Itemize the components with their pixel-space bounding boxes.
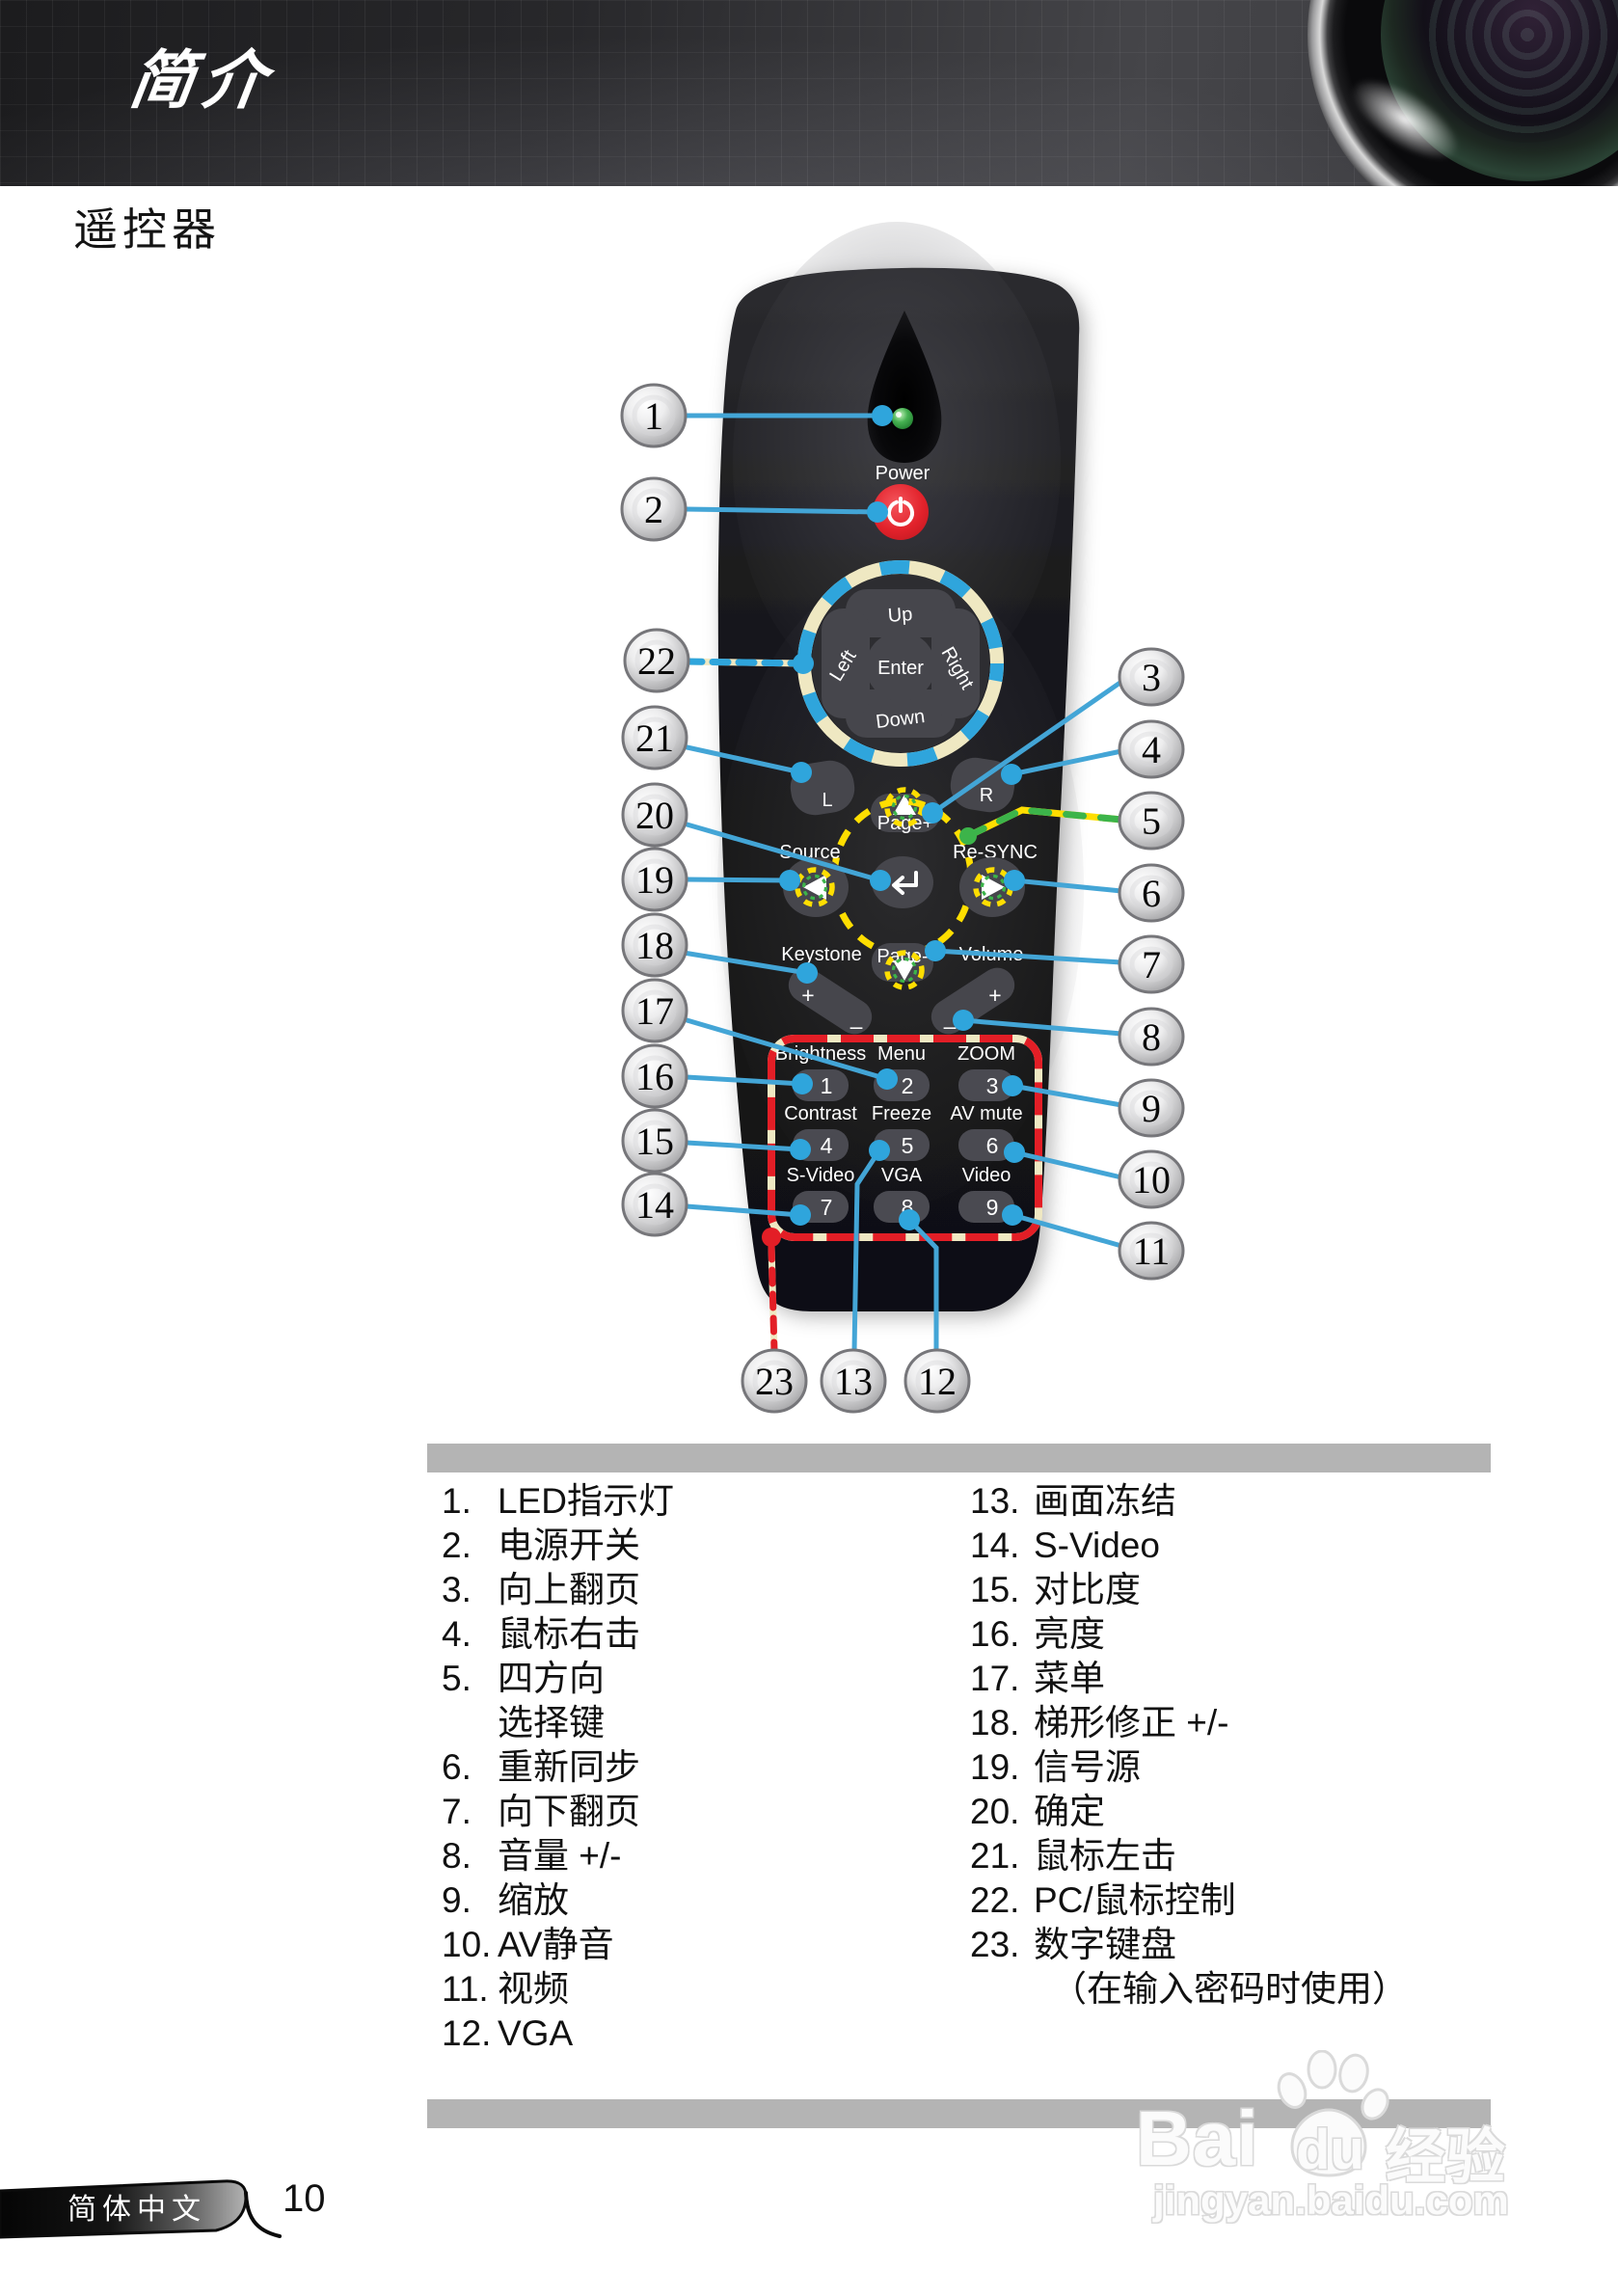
legend-item-text: LED指示灯 bbox=[498, 1479, 674, 1524]
legend-item: 18.梯形修正 +/- bbox=[970, 1701, 1491, 1745]
callout-line-19 bbox=[687, 879, 790, 880]
legend-item: 2.电源开关 bbox=[442, 1524, 895, 1568]
legend-item: 19.信号源 bbox=[970, 1745, 1491, 1790]
legend-item-text: 重新同步 bbox=[498, 1745, 640, 1790]
keypad-key-digit: 2 bbox=[902, 1073, 914, 1098]
keypad-key-digit: 3 bbox=[986, 1073, 999, 1098]
callout-anchor-dot-7 bbox=[925, 940, 946, 961]
legend-item-text: 四方向 bbox=[498, 1657, 605, 1701]
legend-item-text: 选择键 bbox=[498, 1701, 605, 1745]
footer-tab: 简体中文 bbox=[0, 2175, 309, 2241]
legend-item-number: 22. bbox=[970, 1878, 1034, 1923]
callout-anchor-dot-18 bbox=[796, 962, 818, 984]
legend-item-text: 视频 bbox=[498, 1967, 569, 2012]
callout-number-8: 8 bbox=[1142, 1015, 1161, 1059]
callout-line-2 bbox=[686, 509, 877, 512]
legend-item: 5.四方向 bbox=[442, 1657, 895, 1701]
legend-item: 11.视频 bbox=[442, 1967, 895, 2012]
callout-anchor-dot-1 bbox=[872, 405, 893, 426]
legend-item-number: 2. bbox=[442, 1524, 498, 1568]
legend-item-text: AV静音 bbox=[498, 1923, 614, 1967]
legend-item-number: 6. bbox=[442, 1745, 498, 1790]
legend-item-number: 16. bbox=[970, 1612, 1034, 1657]
callout-anchor-dot-3 bbox=[922, 802, 943, 824]
keypad-key-digit: 6 bbox=[986, 1133, 999, 1158]
keypad-key-digit: 5 bbox=[902, 1133, 914, 1158]
legend-item-text: 对比度 bbox=[1034, 1568, 1141, 1612]
legend-item: 8.音量 +/- bbox=[442, 1834, 895, 1878]
legend-item-number: 8. bbox=[442, 1834, 498, 1878]
callout-number-18: 18 bbox=[635, 924, 674, 967]
legend-item-number: 12. bbox=[442, 2012, 498, 2056]
legend-item: 17.菜单 bbox=[970, 1657, 1491, 1701]
legend-item: 1.LED指示灯 bbox=[442, 1479, 895, 1524]
callout-anchor-dot-23 bbox=[762, 1228, 781, 1247]
keypad-key-label: Menu bbox=[877, 1043, 926, 1065]
legend-item: 21.鼠标左击 bbox=[970, 1834, 1491, 1878]
callout-number-16: 16 bbox=[635, 1055, 674, 1098]
callout-number-22: 22 bbox=[637, 639, 676, 683]
legend-item-text: 缩放 bbox=[498, 1878, 569, 1923]
watermark-brand-prefix: Bai bbox=[1136, 2094, 1259, 2183]
legend-item: 15.对比度 bbox=[970, 1568, 1491, 1612]
legend-item-text: 亮度 bbox=[1034, 1612, 1105, 1657]
legend-item: 23.数字键盘 bbox=[970, 1923, 1491, 1967]
led-glint bbox=[896, 412, 902, 418]
legend-item-text: 电源开关 bbox=[498, 1524, 640, 1568]
callout-anchor-dot-19 bbox=[779, 870, 800, 891]
legend-item: 13.画面冻结 bbox=[970, 1479, 1491, 1524]
callout-anchor-dot-11 bbox=[1002, 1204, 1023, 1226]
keypad-key-label: Video bbox=[962, 1165, 1011, 1186]
power-label: Power bbox=[876, 463, 930, 484]
callout-number-3: 3 bbox=[1142, 656, 1161, 699]
legend-item-text: S-Video bbox=[1034, 1524, 1160, 1568]
keypad-key-digit: 7 bbox=[821, 1195, 833, 1220]
callout-number-7: 7 bbox=[1142, 943, 1161, 986]
legend-item-number: 7. bbox=[442, 1790, 498, 1834]
legend-item-text: 音量 +/- bbox=[498, 1834, 622, 1878]
legend-item-text: 向上翻页 bbox=[498, 1568, 640, 1612]
footer-language-label: 简体中文 bbox=[67, 2194, 206, 2226]
callout-anchor-dot-9 bbox=[1002, 1075, 1023, 1096]
legend-item-text: 菜单 bbox=[1034, 1657, 1105, 1701]
legend-item-number: 3. bbox=[442, 1568, 498, 1612]
callout-number-23: 23 bbox=[755, 1360, 794, 1403]
callout-number-12: 12 bbox=[918, 1360, 957, 1403]
legend-top-bar bbox=[427, 1444, 1491, 1472]
keypad-key-label: Freeze bbox=[872, 1103, 931, 1124]
callout-number-20: 20 bbox=[635, 794, 674, 837]
led-indicator bbox=[892, 408, 913, 429]
legend-item-number: 19. bbox=[970, 1745, 1034, 1790]
keypad-key-label: VGA bbox=[881, 1165, 923, 1186]
keystone-plus: + bbox=[801, 983, 814, 1008]
callout-anchor-dot-2 bbox=[867, 501, 888, 523]
legend-item-text: PC/鼠标控制 bbox=[1034, 1878, 1236, 1923]
legend-item-number: 14. bbox=[970, 1524, 1034, 1568]
legend-item-number: 4. bbox=[442, 1612, 498, 1657]
legend-item-text: VGA bbox=[498, 2012, 573, 2056]
callout-anchor-dot-15 bbox=[790, 1139, 811, 1160]
manual-page: 简介 遥控器 bbox=[0, 0, 1618, 2296]
legend-item-text: 鼠标左击 bbox=[1034, 1834, 1176, 1878]
callout-number-14: 14 bbox=[635, 1183, 674, 1227]
legend-item-number: 9. bbox=[442, 1878, 498, 1923]
callout-number-2: 2 bbox=[644, 488, 663, 531]
legend-item-text: 信号源 bbox=[1034, 1745, 1141, 1790]
numeric-keypad: Brightness1Menu2ZOOM3Contrast4Freeze5AV … bbox=[775, 1043, 1023, 1223]
callout-anchor-dot-6 bbox=[1004, 870, 1025, 891]
nav-up-label: Up bbox=[887, 604, 913, 627]
callout-anchor-dot-16 bbox=[792, 1073, 813, 1094]
legend-item-number: 23. bbox=[970, 1923, 1034, 1967]
keypad-key-digit: 1 bbox=[821, 1073, 833, 1098]
mouse-right-label: R bbox=[980, 785, 993, 806]
legend-item: 22.PC/鼠标控制 bbox=[970, 1878, 1491, 1923]
legend-column-right: 13.画面冻结14.S-Video15.对比度16.亮度17.菜单18.梯形修正… bbox=[970, 1479, 1491, 2012]
callout-number-10: 10 bbox=[1132, 1158, 1171, 1202]
legend-item: 4.鼠标右击 bbox=[442, 1612, 895, 1657]
callout-anchor-dot-4 bbox=[1001, 764, 1022, 785]
legend-item: 14.S-Video bbox=[970, 1524, 1491, 1568]
legend-item-number: 11. bbox=[442, 1967, 498, 2012]
callout-anchor-dot-17 bbox=[876, 1068, 898, 1090]
legend-item: 12.VGA bbox=[442, 2012, 895, 2056]
legend-item-number: 5. bbox=[442, 1657, 498, 1701]
volume-plus: + bbox=[988, 983, 1001, 1008]
callout-number-21: 21 bbox=[635, 716, 674, 760]
page-number: 10 bbox=[283, 2177, 326, 2221]
callout-number-9: 9 bbox=[1142, 1087, 1161, 1130]
callout-anchor-dot-8 bbox=[953, 1010, 974, 1031]
callout-number-5: 5 bbox=[1142, 799, 1161, 843]
callout-anchor-dot-5 bbox=[959, 827, 977, 845]
legend-item-number bbox=[970, 1967, 1034, 2012]
legend-item-number: 13. bbox=[970, 1479, 1034, 1524]
callout-anchor-dot-22 bbox=[793, 653, 814, 674]
callout-anchor-dot-12 bbox=[899, 1209, 920, 1230]
legend-item: （在输入密码时使用） bbox=[970, 1967, 1491, 2012]
legend-item-number: 21. bbox=[970, 1834, 1034, 1878]
legend-item-text: （在输入密码时使用） bbox=[1034, 1967, 1408, 2012]
legend-item: 3.向上翻页 bbox=[442, 1568, 895, 1612]
callout-number-19: 19 bbox=[635, 858, 674, 902]
legend-item-text: 数字键盘 bbox=[1034, 1923, 1176, 1967]
legend-item-number: 18. bbox=[970, 1701, 1034, 1745]
callout-number-17: 17 bbox=[635, 989, 674, 1033]
legend-column-left: 1.LED指示灯2.电源开关3.向上翻页4.鼠标右击5.四方向选择键6.重新同步… bbox=[442, 1479, 895, 2056]
callout-anchor-dot-13 bbox=[869, 1140, 890, 1161]
keystone-label: Keystone bbox=[781, 944, 861, 965]
footer-tab-swoosh bbox=[246, 2193, 280, 2236]
legend-item-number: 17. bbox=[970, 1657, 1034, 1701]
watermark-brand-mid: du bbox=[1296, 2118, 1364, 2182]
callout-anchor-dot-20 bbox=[870, 870, 891, 891]
callout-anchor-dot-10 bbox=[1004, 1142, 1025, 1163]
legend-item: 选择键 bbox=[442, 1701, 895, 1745]
legend-item: 20.确定 bbox=[970, 1790, 1491, 1834]
callout-anchor-dot-21 bbox=[791, 762, 812, 783]
callout-anchor-dot-14 bbox=[790, 1204, 811, 1226]
legend-item-number: 20. bbox=[970, 1790, 1034, 1834]
keypad-key-label: S-Video bbox=[787, 1165, 855, 1186]
callout-number-4: 4 bbox=[1142, 728, 1161, 771]
legend-item: 16.亮度 bbox=[970, 1612, 1491, 1657]
legend-item: 10.AV静音 bbox=[442, 1923, 895, 1967]
legend-item-number: 1. bbox=[442, 1479, 498, 1524]
keypad-key-label: Contrast bbox=[784, 1103, 857, 1124]
watermark-url: jingyan.baidu.com bbox=[1153, 2177, 1509, 2224]
callout-number-13: 13 bbox=[834, 1360, 873, 1403]
mouse-left-label: L bbox=[822, 790, 832, 811]
legend-item: 7.向下翻页 bbox=[442, 1790, 895, 1834]
legend-item-number bbox=[442, 1701, 498, 1745]
nav-pad: Up Left Right Down Enter bbox=[804, 567, 997, 760]
keypad-key-digit: 9 bbox=[986, 1195, 999, 1220]
legend-item-text: 确定 bbox=[1034, 1790, 1105, 1834]
callout-number-15: 15 bbox=[635, 1120, 674, 1163]
callout-number-1: 1 bbox=[644, 394, 663, 438]
keypad-key-label: ZOOM bbox=[957, 1043, 1015, 1065]
keypad-key-digit: 4 bbox=[821, 1133, 833, 1158]
legend-item: 9.缩放 bbox=[442, 1878, 895, 1923]
callout-number-6: 6 bbox=[1142, 872, 1161, 915]
callout-number-11: 11 bbox=[1133, 1229, 1171, 1273]
legend-item-text: 画面冻结 bbox=[1034, 1479, 1176, 1524]
nav-enter-label: Enter bbox=[877, 658, 924, 679]
legend-item-text: 向下翻页 bbox=[498, 1790, 640, 1834]
legend-item-text: 梯形修正 +/- bbox=[1034, 1701, 1229, 1745]
legend-item-number: 15. bbox=[970, 1568, 1034, 1612]
legend-item: 6.重新同步 bbox=[442, 1745, 895, 1790]
keypad-key-label: AV mute bbox=[950, 1103, 1022, 1124]
legend-item-number: 10. bbox=[442, 1923, 498, 1967]
legend-item-text: 鼠标右击 bbox=[498, 1612, 640, 1657]
